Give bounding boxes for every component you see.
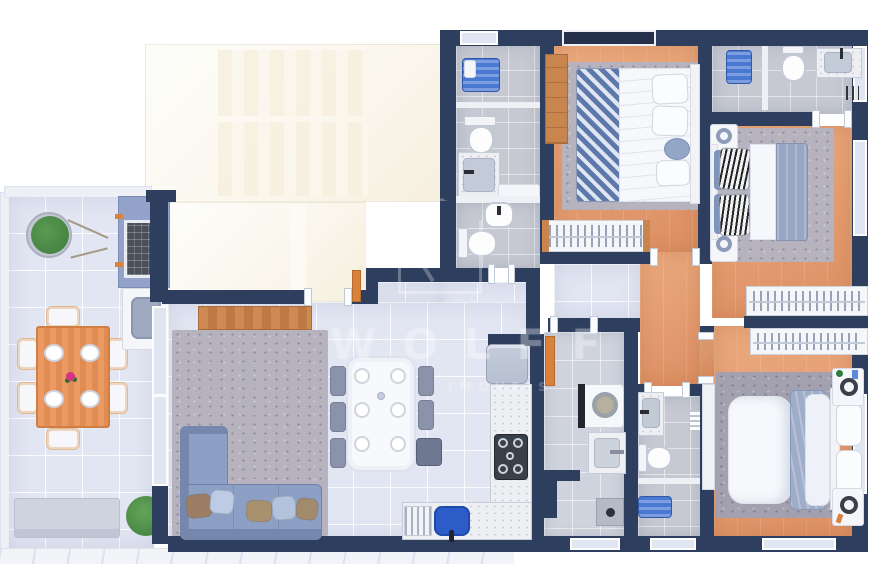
place-setting	[390, 436, 406, 452]
roof-panel-lower	[166, 202, 366, 302]
washer-drum-icon	[592, 392, 618, 418]
throw-pillow	[245, 499, 272, 522]
bed2-gray-blanket	[776, 143, 808, 241]
wall-laundry-stub	[544, 478, 557, 518]
sideboard	[198, 306, 312, 330]
toilet-icon	[468, 126, 494, 154]
bedroom1-door-frame	[692, 248, 700, 266]
bathroom3-door-frame	[682, 382, 690, 398]
shower-mat	[638, 496, 672, 518]
bed3-folded-duvet	[728, 396, 792, 504]
dining-chair	[330, 438, 346, 468]
wall-laundry-bath3-divider	[624, 318, 638, 540]
place-setting	[80, 390, 100, 408]
shower-fixture-icon	[464, 60, 476, 78]
bed-round-pillow	[664, 138, 690, 160]
faucet-icon	[840, 48, 843, 59]
cooktop-burner-icon	[498, 464, 508, 474]
table-lamp-icon	[716, 128, 732, 144]
bedroom1-open-wardrobe	[542, 220, 650, 252]
bedroom3-open-wardrobe	[750, 328, 868, 355]
entry-door-frame	[344, 288, 352, 306]
cooktop-burner-icon	[498, 438, 508, 448]
dining-chair	[330, 402, 346, 432]
dining-chair	[330, 366, 346, 396]
wall-balcony-bottom	[152, 486, 168, 544]
grill-handle-icon	[115, 262, 123, 267]
towel-rail-icon	[846, 86, 859, 100]
roof-panel-lower-stripe	[290, 204, 306, 300]
washing-machine-panel	[578, 384, 585, 428]
table-lamp-icon	[716, 236, 732, 252]
dining-bench	[416, 438, 442, 466]
floorplan-render: WOLFF IMÓVEIS	[0, 0, 870, 580]
table-lamp-icon	[840, 496, 858, 514]
bedroom3-bottom-window	[762, 538, 836, 550]
dining-chair	[418, 366, 434, 396]
glass-slider-mullion	[152, 394, 168, 397]
faucet-icon	[497, 206, 501, 215]
wardrobe-wood-end	[542, 220, 549, 252]
entry-door-frame	[304, 288, 312, 306]
bed-pillow	[656, 159, 691, 186]
terrace-chair-top	[46, 306, 80, 328]
laundry-door-frame	[550, 316, 558, 334]
toilet-tank	[782, 46, 804, 54]
toilet-icon	[781, 54, 806, 82]
roof-panel-stripes-a	[218, 50, 368, 116]
faucet-icon	[610, 450, 624, 454]
faucet-icon	[449, 530, 454, 542]
wall-kitchen-right	[530, 334, 544, 540]
laundry-window	[570, 538, 620, 550]
dining-chair	[418, 400, 434, 430]
powder-door-frame	[508, 264, 515, 284]
grill-handle-icon	[115, 214, 123, 219]
laundry-door-frame	[590, 316, 598, 334]
nightstand-decor-icon	[852, 370, 858, 379]
wall-bed2-bottom	[744, 316, 868, 328]
nightstand-decor-icon	[836, 370, 843, 377]
table-lamp-icon	[840, 378, 858, 396]
refrigerator	[486, 344, 528, 384]
bedroom1-dresser	[545, 54, 568, 144]
wall-living-top	[162, 290, 308, 304]
wardrobe-wood-end	[643, 220, 650, 252]
faucet-icon	[464, 170, 474, 174]
sofa-chaise	[180, 426, 228, 490]
bed1-headboard	[690, 64, 700, 204]
bathroom2-door-frame	[844, 110, 852, 128]
shower-divider	[456, 102, 540, 108]
terrace-bench	[14, 498, 120, 538]
wall-bed1-bottom	[540, 250, 654, 264]
bed1-striped-blanket	[576, 68, 620, 202]
toilet-tank	[464, 116, 496, 126]
toilet-icon	[646, 446, 672, 470]
throw-pillow	[295, 497, 320, 522]
bedroom3-door-frame	[698, 332, 714, 340]
plant-foliage-icon	[31, 216, 69, 254]
place-setting	[44, 344, 64, 362]
powder-door-frame	[488, 264, 495, 284]
bathroom1-window	[460, 31, 498, 45]
bedroom3-wall-cabinet	[702, 384, 715, 490]
hallway-floor-wood	[640, 252, 700, 386]
bed-pillow	[651, 73, 689, 105]
vanity-basin	[463, 158, 495, 192]
shower-divider	[638, 478, 700, 484]
place-setting	[354, 436, 370, 452]
laundry-door-leaf	[545, 336, 555, 386]
shower-divider	[762, 46, 768, 110]
bedroom1-door-frame	[650, 248, 658, 266]
bedroom2-open-wardrobe	[746, 286, 868, 316]
cooktop-burner-icon	[506, 452, 514, 460]
shower-mat	[726, 50, 752, 84]
place-setting	[390, 368, 406, 384]
bed2-duvet	[750, 144, 776, 240]
bathroom2-door-frame	[812, 110, 820, 128]
bed3-sheet	[805, 394, 830, 506]
cooktop-burner-icon	[513, 464, 523, 474]
bedroom3-door-frame	[698, 376, 714, 384]
bedroom2-window	[853, 140, 867, 236]
wall-grill-back	[150, 190, 168, 302]
hallway-floor-tile	[554, 264, 640, 318]
place-setting	[354, 402, 370, 418]
place-setting	[390, 402, 406, 418]
bed-pillow	[836, 450, 862, 492]
wall-grill-stub	[146, 190, 176, 202]
zebra-pillow	[718, 193, 750, 236]
terrace-chair-bottom	[46, 428, 80, 450]
roof-panel-stripes-b	[218, 122, 368, 196]
dish-rack	[404, 506, 432, 536]
bathroom3-window	[650, 538, 696, 550]
floor-drain-hole	[606, 508, 615, 517]
faucet-icon	[640, 410, 649, 414]
place-setting	[354, 368, 370, 384]
bed-pillow	[651, 105, 688, 136]
zebra-pillow	[718, 147, 750, 190]
wall-hall-vertical	[526, 268, 540, 340]
vanity-basin	[824, 52, 852, 73]
throw-pillow	[271, 495, 297, 521]
table-centerpiece-icon	[377, 392, 385, 400]
place-setting	[80, 344, 100, 362]
bed-pillow	[836, 404, 862, 446]
throw-pillow	[209, 489, 235, 515]
bedroom1-window	[562, 30, 656, 46]
cooktop-burner-icon	[513, 438, 523, 448]
entry-door-leaf	[352, 270, 361, 302]
place-setting	[44, 390, 64, 408]
flower-centerpiece-icon	[66, 372, 75, 381]
towel-rail-icon	[690, 410, 700, 430]
